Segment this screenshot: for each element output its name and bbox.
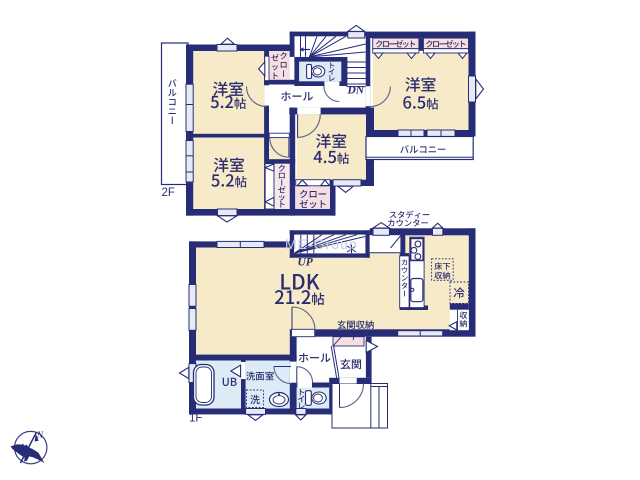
svg-text:1F: 1F <box>189 413 202 425</box>
svg-text:DN: DN <box>347 85 365 97</box>
svg-text:UP: UP <box>298 257 314 269</box>
svg-text:ME-Group: ME-Group <box>285 236 358 252</box>
svg-text:N: N <box>36 431 44 441</box>
svg-text:2F: 2F <box>162 187 175 199</box>
